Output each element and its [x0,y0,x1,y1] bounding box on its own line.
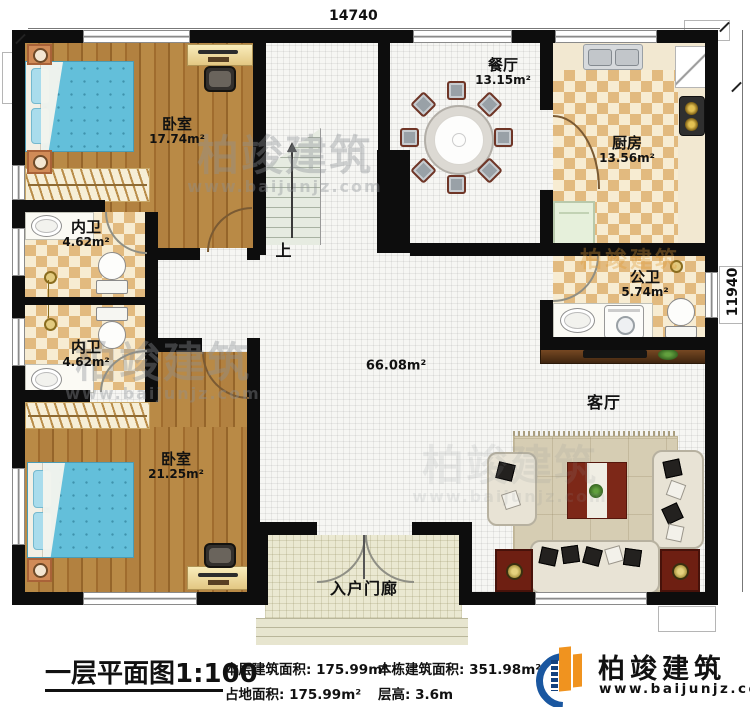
chair-bedroom1 [204,66,236,92]
wall [253,43,266,255]
wall [540,190,553,250]
shower-fixture [44,271,57,284]
sofa-pillow [666,524,685,543]
window [12,318,25,366]
title-block: 一层平面图1:100 本层建筑面积: 175.99m² 占地面积: 175.99… [0,645,750,707]
wall [540,43,553,110]
armchair-left [487,452,537,526]
shower-fixture [670,260,683,273]
room-label-dining: 餐厅 13.15m² [475,57,531,87]
plant-icon [589,484,603,498]
room-label-publicbath: 公卫 5.74m² [621,269,668,299]
nightstand [27,44,52,65]
dining-chair [400,128,419,147]
wall [377,150,410,253]
window [12,228,25,276]
hall-area-label: 66.08m² [366,360,426,375]
dining-chair [494,128,513,147]
wall [540,243,553,256]
wall [553,243,705,256]
bath2-sink [31,368,62,391]
stairs-up-label: 上 [275,242,292,260]
stat-storey-height: 层高: 3.6m [378,683,453,703]
bed-bedroom2 [27,462,134,558]
wardrobe-bedroom2 [25,402,150,429]
wall [378,43,390,150]
sofa-pillow [623,548,642,567]
bed-bedroom1 [25,61,134,152]
publicbath-sink [560,308,595,333]
wall [25,200,105,212]
wall [25,297,145,305]
window [535,592,647,605]
side-table-right [660,549,700,592]
shower-fixture [44,318,57,331]
side-table-left [495,549,533,592]
entry-door-leaf [363,535,365,579]
bath1-toilet [96,252,126,294]
window [555,30,657,43]
wall [25,390,90,402]
tv [583,350,647,358]
window [413,30,512,43]
window [705,272,718,318]
sofa-pillow [662,458,682,478]
desk-bedroom2 [187,566,253,590]
dimension-line-top [28,28,720,29]
fridge [553,201,595,248]
logo-building-icon [536,645,590,703]
bed-sheet-fold [43,463,65,557]
wall [255,522,317,535]
wall [540,300,553,340]
room-label-kitchen: 厨房 13.56m² [599,135,655,165]
window [83,592,197,605]
kitchen-sink [583,44,643,70]
stove [679,96,705,136]
sofa-pillow [561,545,580,564]
stat-total-area: 本栋建筑面积: 351.98m² [378,658,541,678]
bed-sheet-fold [41,62,63,151]
room-label-bedroom2: 卧室 21.25m² [148,451,204,481]
dimension-right-value: 11940 [725,259,741,325]
room-label-bath2: 内卫 4.62m² [62,339,109,369]
plant-icon [658,349,678,360]
wall [145,338,202,352]
floorplan-page: 14740 11940 柏竣建筑 www.baijunjz.com 柏竣建筑 w… [0,0,750,707]
porch-steps [256,618,468,645]
room-label-bath1: 内卫 4.62m² [62,219,109,249]
dimension-top-value: 14740 [326,8,381,24]
window [12,165,25,200]
bath1-sink [31,215,62,237]
stair-arrow-head [287,142,297,152]
wall [410,243,543,256]
room-label-bedroom1: 卧室 17.74m² [149,116,205,146]
chair-bedroom2 [204,543,236,568]
title-underline [45,689,223,692]
stat-footprint-area: 占地面积: 175.99m² [225,683,361,703]
stat-floor-area: 本层建筑面积: 175.99m² [225,658,388,678]
dimension-line-right [742,30,743,592]
sofa-pillow [538,546,558,566]
nightstand [27,150,52,174]
dresser-bedroom1 [187,44,253,66]
wall [412,522,472,535]
window [12,468,25,545]
nightstand [27,558,52,582]
dining-chair [447,175,466,194]
window [83,30,190,43]
publicbath-toilet [663,298,697,337]
washing-machine [604,305,644,339]
dining-chair [447,81,466,100]
company-logo: 柏竣建筑 www.baijunjz.com [536,633,750,707]
outside-step [658,606,716,632]
wall [459,535,472,605]
room-label-porch: 入户门廊 [330,580,398,598]
stair-arrow [291,152,293,238]
room-label-living: 客厅 [587,394,621,412]
logo-url-text: www.baijunjz.com [599,681,750,697]
wall [540,337,705,350]
dimension-tick [731,82,742,93]
